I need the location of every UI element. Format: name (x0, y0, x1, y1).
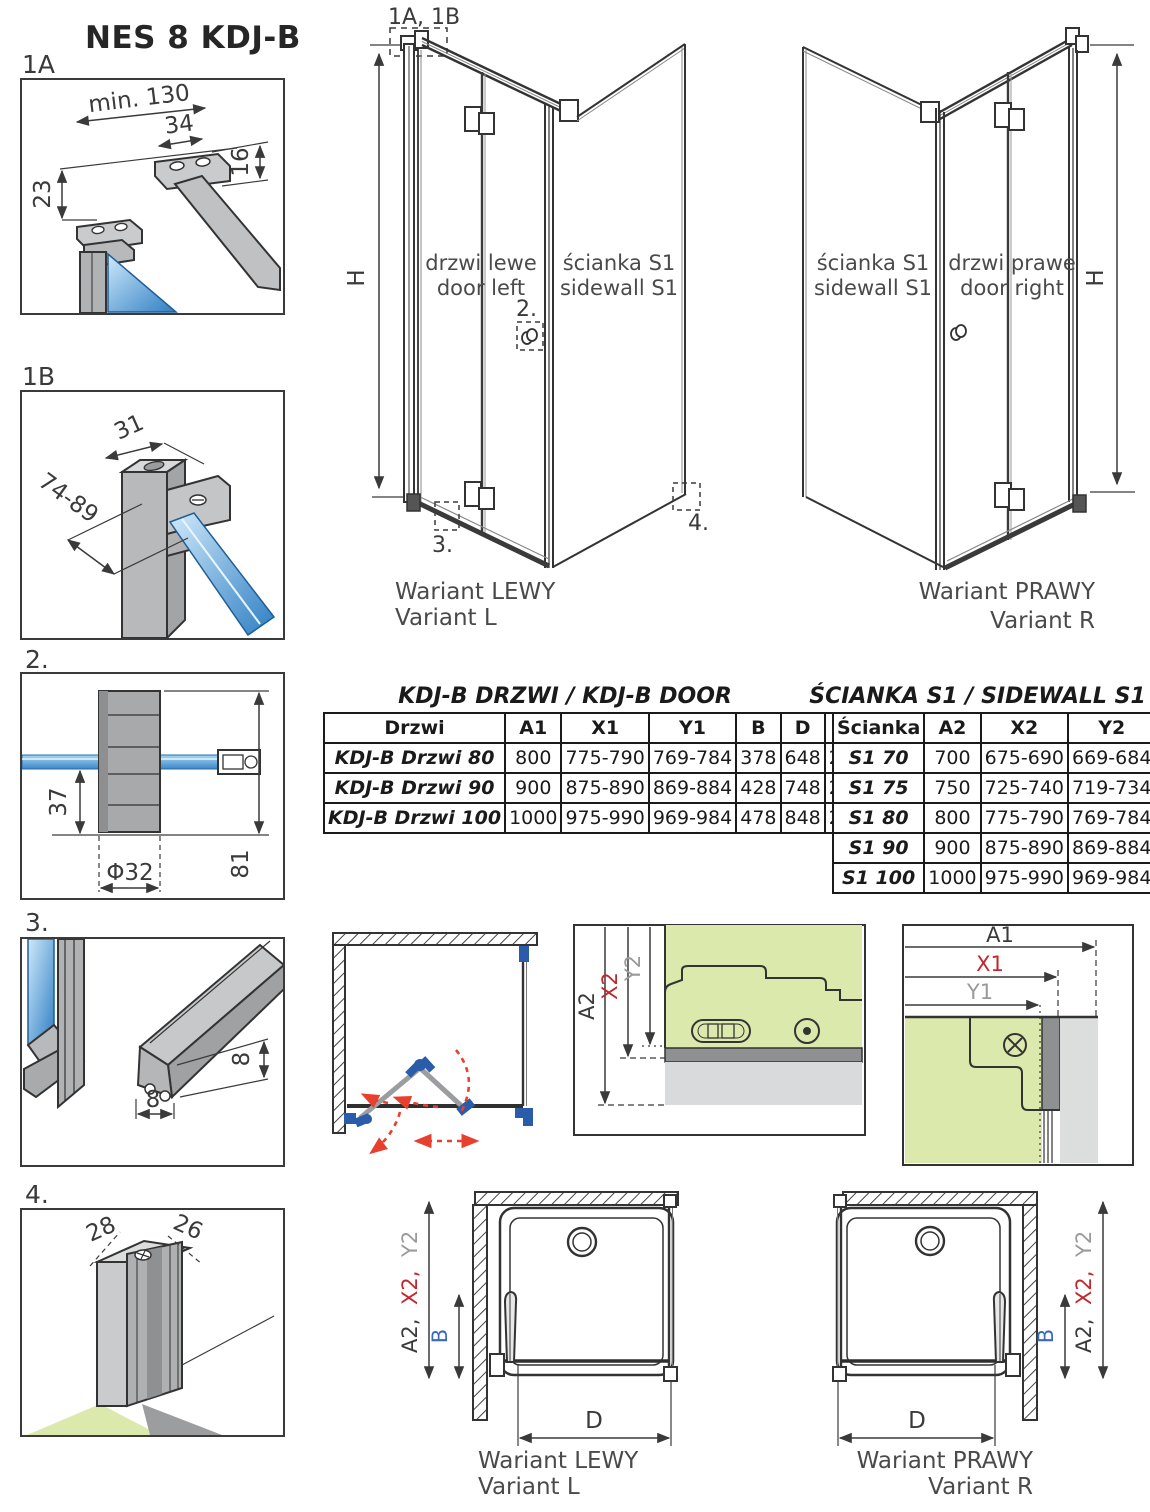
caption-variant-r-pl: Wariant PRAWY (919, 579, 1096, 605)
col-drzwi: Drzwi (324, 713, 505, 743)
table-row: S1 1001000975-990969-984 (833, 863, 1150, 893)
plan-view-right: B A2, X2, Y2 D Wariant PRAWY Variant R (820, 1190, 1150, 1512)
dim-23: 23 (30, 179, 56, 208)
dim-x2-plan: X2, (400, 1271, 422, 1305)
dim-b-plan: B (428, 1329, 452, 1343)
iso-view-left: 1A, 1B H drzwi lewe door left ścianka S1… (330, 0, 750, 640)
dim-8-horizontal: 8 (146, 1087, 161, 1113)
table-row: S1 70700675-690669-684 (833, 743, 1150, 773)
dim-a2: A2 (575, 992, 599, 1020)
detail-2-label: 2. (25, 645, 49, 674)
dim-y1: Y1 (966, 980, 993, 1004)
dim-x2-plan-r: X2, (1072, 1271, 1096, 1305)
detail-3-box: 8 8 (20, 937, 285, 1167)
detail-3-label: 3. (25, 908, 49, 937)
caption-variant-l-pl: Wariant LEWY (395, 579, 556, 605)
table-row: KDJ-B Drzwi 1001000975-990969-9844788482… (324, 803, 881, 833)
door-table: Drzwi A1 X1 Y1 B D H KDJ-B Drzwi 8080077… (323, 712, 882, 834)
label-door-right-en: door right (960, 276, 1064, 300)
dim-y2: Y2 (621, 955, 645, 982)
detail-1a-drawing: min. 130 34 16 23 (22, 80, 283, 313)
iso-view-right: H ścianka S1 sidewall S1 drzwi prawe doo… (790, 0, 1150, 645)
dim-a1: A1 (986, 923, 1014, 947)
col-scianka: Ścianka (833, 713, 924, 743)
detail-1a-label: 1A (22, 50, 55, 79)
table-row: KDJ-B Drzwi 90900875-890869-884428748200… (324, 773, 881, 803)
col-x2: X2 (981, 713, 1068, 743)
dim-16: 16 (228, 147, 254, 176)
dim-a2-plan: A2, (400, 1319, 422, 1353)
col-y2: Y2 (1068, 713, 1150, 743)
dim-h-right: H (1083, 269, 1109, 286)
detail-1b-box: 31 74-89 (20, 390, 285, 640)
dim-a2-plan-r: A2, (1072, 1319, 1096, 1353)
dim-37: 37 (46, 787, 72, 816)
detail-2-drawing: 37 81 Φ32 (22, 674, 283, 898)
col-a1: A1 (505, 713, 561, 743)
caption-plan-r-en: Variant R (928, 1474, 1033, 1500)
marker-2: 2. (516, 297, 537, 322)
dim-d-plan-r: D (908, 1408, 926, 1434)
table-row: S1 90900875-890869-884 (833, 833, 1150, 863)
dim-y2-plan-r: Y2 (1072, 1231, 1096, 1258)
dim-x2: X2 (598, 972, 622, 1000)
detail-3-drawing: 8 8 (22, 939, 283, 1165)
dim-28: 28 (82, 1212, 119, 1248)
sidewall-table: Ścianka A2 X2 Y2 S1 70700675-690669-684 … (832, 712, 1150, 894)
plan-view-left: A2, X2, Y2 B D Wariant LEWY Variant L (400, 1190, 690, 1512)
col-d: D (781, 713, 825, 743)
caption-plan-l-pl: Wariant LEWY (478, 1448, 639, 1474)
col-x1: X1 (561, 713, 648, 743)
label-sidewall-r-pl: ścianka S1 (817, 251, 930, 275)
detail-4-box: 28 26 (20, 1208, 285, 1437)
dim-26: 26 (169, 1210, 206, 1245)
dim-74-89: 74-89 (33, 468, 102, 528)
sidewall-table-header-row: Ścianka A2 X2 Y2 (833, 713, 1150, 743)
door-dimension-detail: A1 X1 Y1 (900, 920, 1140, 1170)
dim-y2-plan: Y2 (400, 1231, 422, 1258)
page-title: NES 8 KDJ-B (85, 20, 301, 56)
detail-4-label: 4. (25, 1180, 49, 1209)
technical-sheet: NES 8 KDJ-B 1A min. 130 34 16 23 1B 31 7… (0, 0, 1150, 1512)
label-door-left-en: door left (437, 276, 525, 300)
detail-2-box: 37 81 Φ32 (20, 672, 285, 900)
dim-8-vertical: 8 (229, 1052, 255, 1067)
table-row: KDJ-B Drzwi 80800775-790769-784378648200… (324, 743, 881, 773)
dim-h-left: H (344, 269, 370, 286)
caption-plan-l-en: Variant L (478, 1474, 580, 1500)
label-door-left-pl: drzwi lewe (425, 251, 537, 275)
caption-variant-r-en: Variant R (990, 608, 1095, 634)
door-table-title: KDJ-B DRZWI / KDJ-B DOOR (323, 684, 807, 709)
dim-phi32: Φ32 (106, 860, 153, 886)
dim-34: 34 (163, 110, 195, 139)
col-b: B (736, 713, 780, 743)
dim-d-plan: D (585, 1408, 603, 1434)
dim-81: 81 (228, 849, 254, 878)
door-table-header-row: Drzwi A1 X1 Y1 B D H (324, 713, 881, 743)
detail-1a-box: min. 130 34 16 23 (20, 78, 285, 315)
dim-b-plan-r: B (1034, 1329, 1058, 1343)
marker-3: 3. (432, 533, 453, 558)
label-sidewall-en: sidewall S1 (560, 276, 678, 300)
sidewall-table-title: ŚCIANKA S1 / SIDEWALL S1 (805, 684, 1150, 709)
label-sidewall-pl: ścianka S1 (563, 251, 676, 275)
dim-x1: X1 (976, 952, 1004, 976)
detail-1b-drawing: 31 74-89 (22, 392, 283, 638)
col-y1: Y1 (649, 713, 736, 743)
detail-1b-label: 1B (22, 362, 55, 391)
caption-plan-r-pl: Wariant PRAWY (857, 1448, 1034, 1474)
label-sidewall-r-en: sidewall S1 (814, 276, 932, 300)
door-swing-schematic (320, 920, 560, 1190)
detail-4-drawing: 28 26 (22, 1210, 283, 1435)
sidewall-dimension-detail: A2 X2 Y2 (570, 920, 870, 1140)
dim-31: 31 (110, 410, 147, 446)
caption-variant-l-en: Variant L (395, 605, 497, 631)
table-row: S1 75750725-740719-734 (833, 773, 1150, 803)
marker-4: 4. (688, 511, 709, 536)
col-a2: A2 (924, 713, 980, 743)
table-row: S1 80800775-790769-784 (833, 803, 1150, 833)
marker-1a1b: 1A, 1B (388, 5, 460, 30)
label-door-right-pl: drzwi prawe (948, 251, 1076, 275)
